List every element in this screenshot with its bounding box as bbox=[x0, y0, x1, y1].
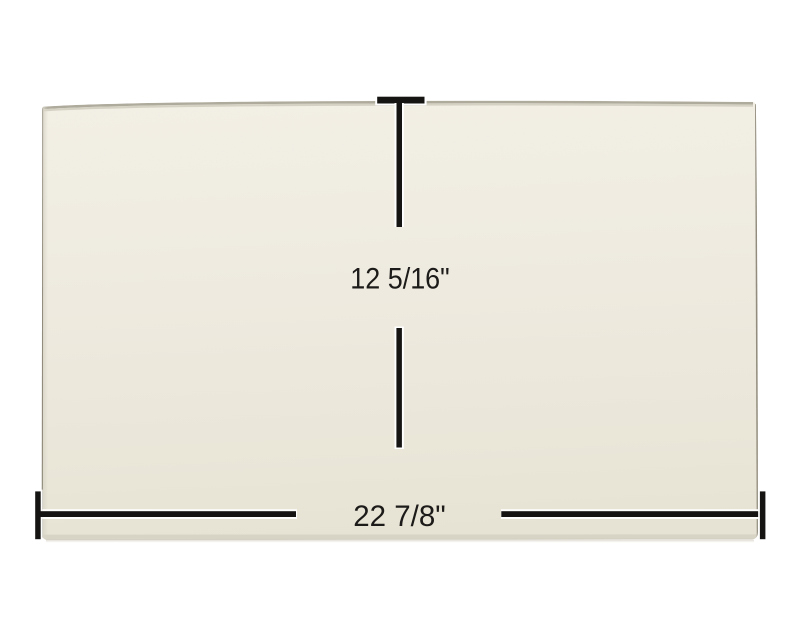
svg-text:22 7/8": 22 7/8" bbox=[353, 500, 446, 533]
svg-text:12 5/16": 12 5/16" bbox=[350, 263, 450, 296]
